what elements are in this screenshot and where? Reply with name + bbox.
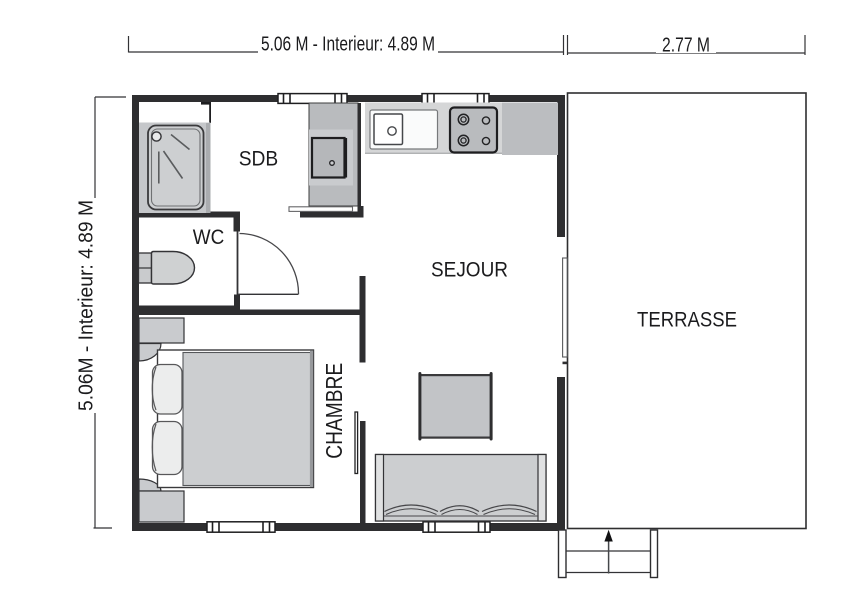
- svg-text:CHAMBRE: CHAMBRE: [321, 363, 347, 459]
- svg-text:2.77 M: 2.77 M: [662, 35, 710, 57]
- svg-text:WC: WC: [193, 226, 225, 249]
- svg-text:TERRASSE: TERRASSE: [637, 308, 737, 332]
- svg-text:SDB: SDB: [239, 148, 279, 171]
- svg-text:5.06M - Interieur: 4.89 M: 5.06M - Interieur: 4.89 M: [76, 200, 98, 411]
- svg-text:SEJOUR: SEJOUR: [431, 258, 508, 282]
- svg-text:5.06 M - Interieur: 4.89 M: 5.06 M - Interieur: 4.89 M: [261, 34, 435, 56]
